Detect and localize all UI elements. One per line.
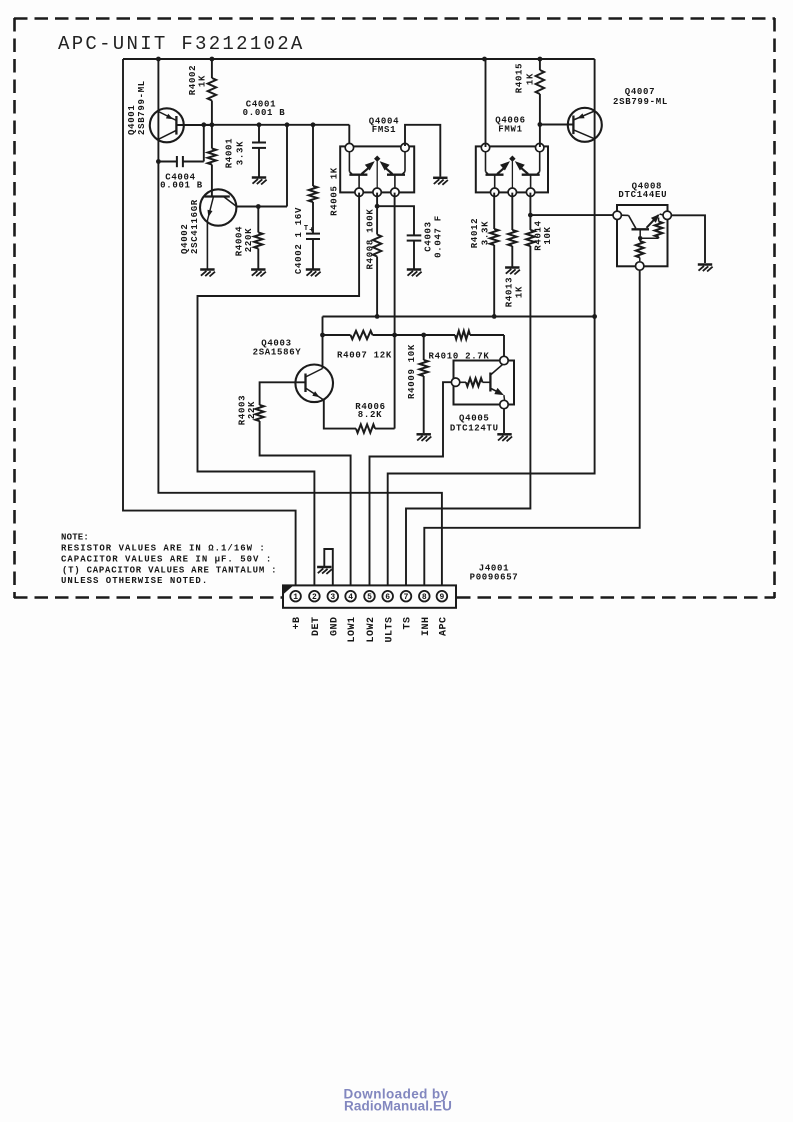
svg-text:R4015: R4015 <box>515 63 525 94</box>
svg-text:2SA1586Y: 2SA1586Y <box>253 348 302 358</box>
svg-text:+: + <box>309 226 314 235</box>
svg-text:ULTS: ULTS <box>384 617 395 643</box>
svg-text:R4005 1K: R4005 1K <box>330 167 340 216</box>
svg-text:0.047 F: 0.047 F <box>434 215 444 258</box>
svg-text:3.3K: 3.3K <box>481 221 491 245</box>
svg-text:1K: 1K <box>515 286 525 298</box>
svg-text:2SB799-ML: 2SB799-ML <box>137 80 147 135</box>
svg-text:TS: TS <box>403 617 414 630</box>
svg-text:6: 6 <box>385 593 390 602</box>
svg-text:Q4007: Q4007 <box>625 87 656 97</box>
svg-text:RESISTOR VALUES ARE IN Ω.1/16: RESISTOR VALUES ARE IN Ω.1/16W : <box>61 543 266 553</box>
svg-text:5: 5 <box>367 593 372 602</box>
svg-text:DTC124TU: DTC124TU <box>450 424 499 434</box>
svg-text:R4009 10K: R4009 10K <box>407 344 417 399</box>
svg-text:DTC144EU: DTC144EU <box>618 190 667 200</box>
svg-text:2SC4116GR: 2SC4116GR <box>190 199 200 254</box>
svg-text:APC-UNIT F3212102A: APC-UNIT F3212102A <box>58 33 305 55</box>
svg-text:Q4002: Q4002 <box>180 223 190 254</box>
svg-text:3: 3 <box>330 593 335 602</box>
svg-text:NOTE:: NOTE: <box>61 533 89 543</box>
svg-text:8.2K: 8.2K <box>358 410 382 420</box>
svg-text:R4012: R4012 <box>470 218 480 249</box>
svg-text:R4007 12K: R4007 12K <box>337 351 392 361</box>
svg-text:LOW1: LOW1 <box>347 617 358 643</box>
svg-text:220K: 220K <box>244 228 254 252</box>
svg-text:(T) CAPACITOR VALUES ARE TANTA: (T) CAPACITOR VALUES ARE TANTALUM : <box>62 565 277 575</box>
svg-text:R4004: R4004 <box>235 226 245 257</box>
svg-text:22K: 22K <box>247 401 257 419</box>
svg-text:FMS1: FMS1 <box>372 125 396 135</box>
svg-text:1K: 1K <box>198 75 208 87</box>
svg-text:T: T <box>304 225 308 233</box>
svg-text:LOW2: LOW2 <box>366 617 377 643</box>
svg-text:+B: +B <box>292 617 303 630</box>
svg-text:APC: APC <box>439 617 450 637</box>
svg-text:R4001: R4001 <box>225 138 235 169</box>
svg-text:R4013: R4013 <box>505 277 515 308</box>
svg-text:9: 9 <box>439 593 444 602</box>
svg-text:R4002: R4002 <box>188 65 198 96</box>
svg-text:0.001 B: 0.001 B <box>243 108 286 118</box>
svg-text:0.001 B: 0.001 B <box>160 180 203 190</box>
svg-text:UNLESS OTHERWISE NOTED.: UNLESS OTHERWISE NOTED. <box>61 576 208 586</box>
svg-text:2SB799-ML: 2SB799-ML <box>613 97 668 107</box>
svg-text:R4008 100K: R4008 100K <box>365 208 375 269</box>
svg-text:C4003: C4003 <box>424 221 434 252</box>
svg-text:1K: 1K <box>526 73 536 85</box>
svg-text:GND: GND <box>329 617 340 637</box>
svg-text:INH: INH <box>421 617 432 637</box>
svg-text:RadioManual.EU: RadioManual.EU <box>344 1099 452 1114</box>
svg-text:10K: 10K <box>543 226 553 244</box>
svg-text:R4014: R4014 <box>534 220 544 251</box>
svg-text:P0090657: P0090657 <box>470 573 519 583</box>
svg-text:8: 8 <box>422 593 427 602</box>
svg-text:CAPACITOR VALUES ARE IN μF. 50: CAPACITOR VALUES ARE IN μF. 50V : <box>61 554 272 564</box>
svg-text:FMW1: FMW1 <box>498 125 522 135</box>
svg-text:1: 1 <box>293 593 298 602</box>
svg-text:C4002 1 16V: C4002 1 16V <box>294 207 304 274</box>
svg-text:2: 2 <box>312 593 317 602</box>
svg-text:4: 4 <box>348 593 353 602</box>
svg-text:Q4001: Q4001 <box>127 104 137 135</box>
svg-text:Q4005: Q4005 <box>459 414 490 424</box>
svg-text:R4003: R4003 <box>238 395 248 426</box>
svg-text:DET: DET <box>311 617 322 637</box>
svg-text:7: 7 <box>404 593 409 602</box>
svg-text:3.3K: 3.3K <box>236 141 246 165</box>
